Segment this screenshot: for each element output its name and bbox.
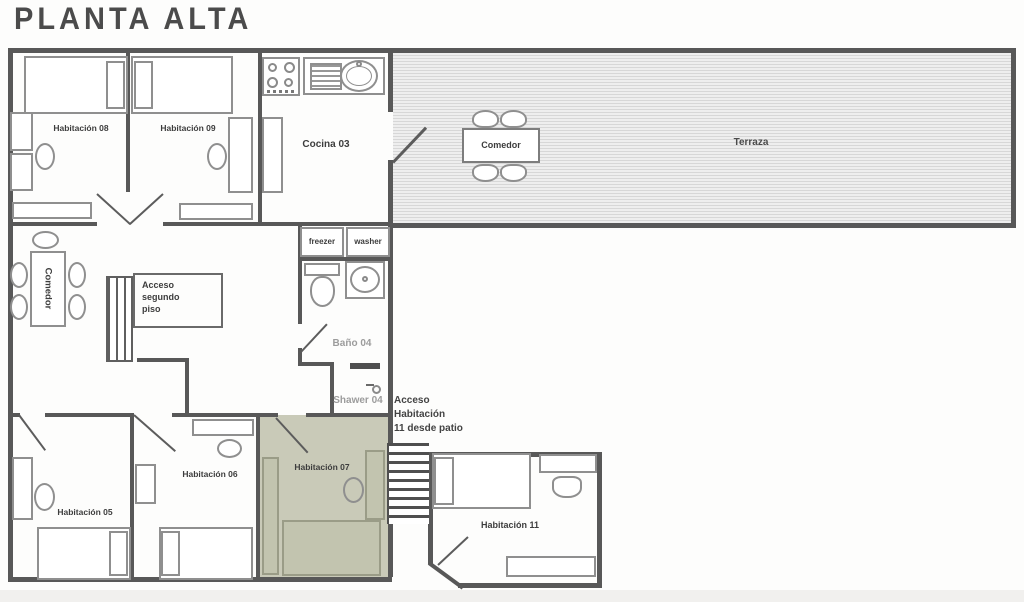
hab08-chair (35, 143, 55, 170)
hab08-label: Habitación 08 (38, 123, 124, 133)
acceso-hab11-line2: Habitación (394, 408, 463, 422)
wall-hab11-bottom (458, 583, 602, 588)
hab08-pillow (106, 61, 125, 109)
hab08-wardrobe-a (10, 112, 33, 151)
comedor-chair (32, 231, 59, 249)
hab07-chair (343, 477, 364, 503)
acceso-hab11-line1: Acceso (394, 394, 463, 408)
hab11-door-swing (437, 536, 468, 565)
bottom-margin (0, 590, 1024, 602)
comedor-chair (68, 262, 86, 288)
stairs-acceso-segundo-piso (106, 276, 133, 362)
hab09-label: Habitación 09 (145, 123, 231, 133)
wall-hall-horizontal-1 (137, 358, 189, 362)
hab09-shelf (179, 203, 253, 220)
hab05-wardrobe (12, 457, 33, 520)
stove-burner-icon (284, 62, 295, 73)
hab06-door-swing (133, 414, 176, 452)
hab07-wardrobe (262, 457, 279, 575)
hab11-desk (539, 454, 597, 473)
hab09-door-swing (129, 193, 164, 225)
wall-top (8, 48, 1016, 53)
hab08-shelf (12, 202, 92, 219)
acceso-hab11-line3: 11 desde patio (394, 422, 463, 436)
wall-terraza-bottom (392, 223, 1016, 228)
hab11-label: Habitación 11 (476, 520, 544, 530)
wall-hall-horizontal-4 (172, 413, 258, 417)
floor-plan: PLANTA ALTA free (0, 0, 1024, 602)
bath-bench (350, 363, 380, 369)
hab05-pillow (109, 531, 128, 576)
hab11-shelf (506, 556, 596, 577)
wall-cocina-terraza-lower (388, 160, 393, 226)
stove-burner-icon (284, 78, 293, 87)
freezer-label: freezer (300, 237, 344, 246)
hab07-desk (365, 450, 385, 520)
hab08-door-swing (96, 193, 131, 225)
wall-hall-vertical-1 (185, 358, 189, 416)
hab09-pillow (134, 61, 153, 109)
wall-terraza-right (1011, 48, 1016, 228)
comedor-terraza-label: Comedor (462, 140, 540, 150)
hab11-corner-wall-diagonal (428, 561, 464, 589)
shower-label: Shawer 04 (330, 395, 386, 406)
hab09-chair (207, 143, 227, 170)
wall-hab07-top-b (306, 413, 390, 417)
acceso-segundo-line3: piso (142, 303, 221, 315)
comedor-chair (10, 262, 28, 288)
hab06-pillow (161, 531, 180, 576)
stove-burner-icon (267, 77, 278, 88)
acceso-segundo-line2: segundo (142, 291, 221, 303)
shower-head-icon (372, 385, 381, 394)
wall-toprooms-bottom-a (8, 222, 97, 226)
wall-divider-hab06-hab07 (256, 413, 260, 579)
bath-faucet (362, 276, 368, 282)
terraza-label: Terraza (711, 137, 791, 148)
terraza-chair (500, 164, 527, 182)
toilet-tank (304, 263, 340, 276)
stairs-acceso-habitacion-11 (387, 443, 429, 524)
kitchen-sink-basin (346, 66, 372, 86)
acceso-segundo-piso-note: Acceso segundo piso (133, 273, 223, 328)
wall-shower-left (330, 362, 334, 417)
hab06-label: Habitación 06 (176, 469, 244, 479)
stove-controls (267, 90, 294, 93)
acceso-segundo-line1: Acceso (142, 279, 221, 291)
comedor-chair (68, 294, 86, 320)
bano-label: Baño 04 (322, 338, 382, 349)
toilet-bowl (310, 276, 335, 307)
wall-hall-horizontal-3 (45, 413, 133, 417)
wall-bath-shower-step (298, 362, 334, 366)
wall-toprooms-bottom-b (163, 222, 390, 226)
hab05-door-swing (18, 414, 46, 451)
terraza-chair (472, 110, 499, 128)
hab06-desk (192, 419, 254, 436)
cocina-label: Cocina 03 (296, 139, 356, 150)
hab05-label: Habitación 05 (52, 507, 118, 517)
hab11-pillow (434, 457, 454, 505)
hab08-wardrobe-b (10, 153, 33, 191)
hab06-wardrobe (135, 464, 156, 504)
wall-cocina-terraza-upper (388, 48, 393, 112)
hab07-bed (282, 520, 381, 576)
hab11-chair (552, 476, 582, 498)
comedor-chair (10, 294, 28, 320)
acceso-hab11-note: Acceso Habitación 11 desde patio (394, 394, 463, 436)
terraza-chair (472, 164, 499, 182)
hab07-label: Habitación 07 (288, 462, 356, 472)
comedor-interior-label: Comedor (43, 251, 54, 327)
wall-hab11-right (597, 452, 602, 588)
hab09-desk (228, 117, 253, 193)
page-title: PLANTA ALTA (14, 2, 252, 38)
washer-label: washer (346, 237, 390, 246)
dish-rack (310, 63, 342, 90)
terraza-chair (500, 110, 527, 128)
hab06-chair (217, 439, 242, 458)
stove-burner-icon (268, 63, 277, 72)
kitchen-cabinet (262, 117, 283, 193)
wall-middle-right (388, 226, 393, 577)
kitchen-faucet (356, 61, 362, 67)
wall-hab07-top-a (258, 413, 278, 417)
